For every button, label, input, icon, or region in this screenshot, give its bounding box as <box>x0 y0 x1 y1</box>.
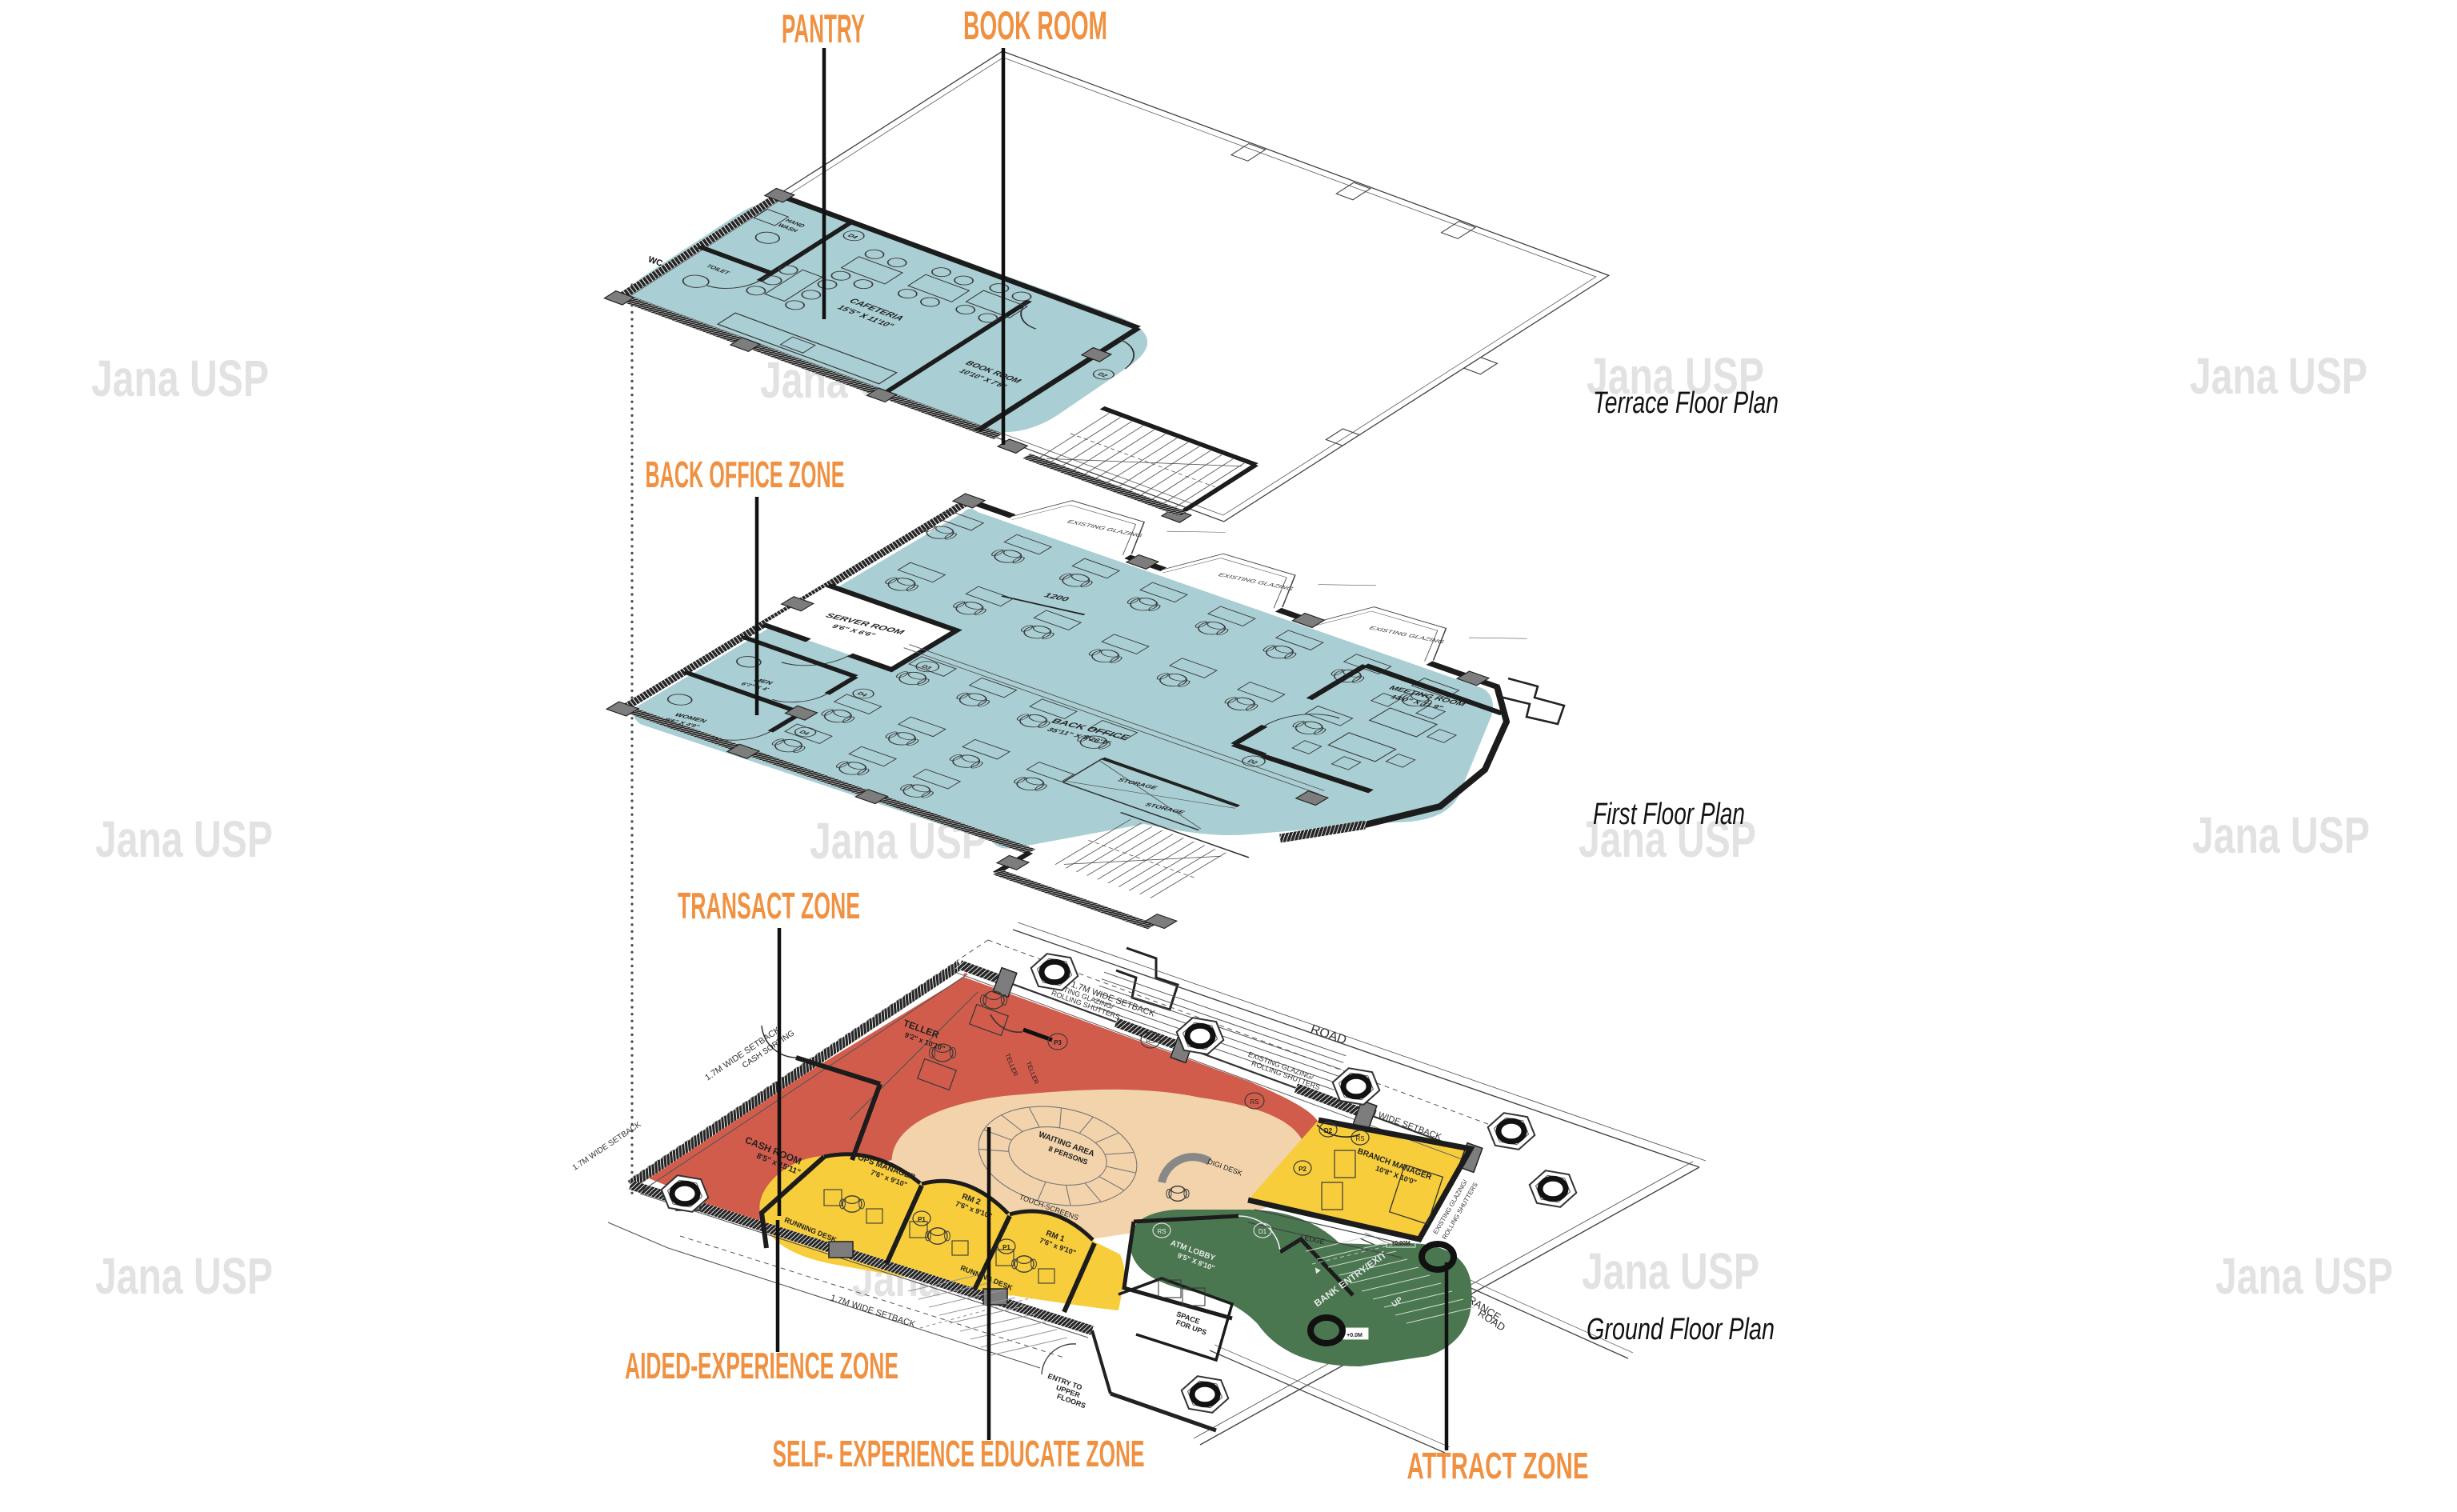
svg-text:Jana USP: Jana USP <box>95 810 273 868</box>
svg-text:AIDED-EXPERIENCE ZONE: AIDED-EXPERIENCE ZONE <box>625 1345 898 1386</box>
svg-text:+0.0M: +0.0M <box>1347 1333 1363 1338</box>
svg-text:Jana USP: Jana USP <box>2215 1247 2393 1305</box>
svg-text:P1: P1 <box>1002 1244 1010 1251</box>
svg-text:BACK OFFICE ZONE: BACK OFFICE ZONE <box>646 454 845 495</box>
svg-text:RS: RS <box>1250 1098 1259 1106</box>
svg-text:Jana USP: Jana USP <box>91 350 269 407</box>
svg-text:BOOK ROOM: BOOK ROOM <box>963 3 1107 48</box>
svg-text:P3: P3 <box>1054 1039 1062 1046</box>
svg-text:SELF- EXPERIENCE EDUCATE ZONE: SELF- EXPERIENCE EDUCATE ZONE <box>773 1433 1145 1474</box>
svg-text:Ground Floor Plan: Ground Floor Plan <box>1587 1313 1775 1346</box>
svg-text:ATTRACT ZONE: ATTRACT ZONE <box>1407 1445 1589 1486</box>
svg-text:Terrace Floor Plan: Terrace Floor Plan <box>1593 386 1779 420</box>
svg-text:RS: RS <box>1146 1038 1154 1045</box>
svg-text:Jana USP: Jana USP <box>2190 347 2367 405</box>
svg-text:Jana USP: Jana USP <box>95 1247 273 1305</box>
svg-text:TRANSACT ZONE: TRANSACT ZONE <box>678 885 860 926</box>
svg-text:RS: RS <box>1355 1135 1364 1142</box>
svg-text:RS: RS <box>1157 1228 1166 1235</box>
svg-text:P1: P1 <box>918 1216 926 1223</box>
svg-text:P2: P2 <box>1299 1166 1307 1173</box>
svg-text:D2: D2 <box>1324 1127 1333 1134</box>
svg-text:Jana USP: Jana USP <box>2192 806 2370 864</box>
svg-text:Jana USP: Jana USP <box>1582 1242 1759 1300</box>
svg-text:D1: D1 <box>1259 1228 1267 1235</box>
svg-text:PANTRY: PANTRY <box>782 6 865 51</box>
svg-text:First Floor Plan: First Floor Plan <box>1593 798 1745 831</box>
